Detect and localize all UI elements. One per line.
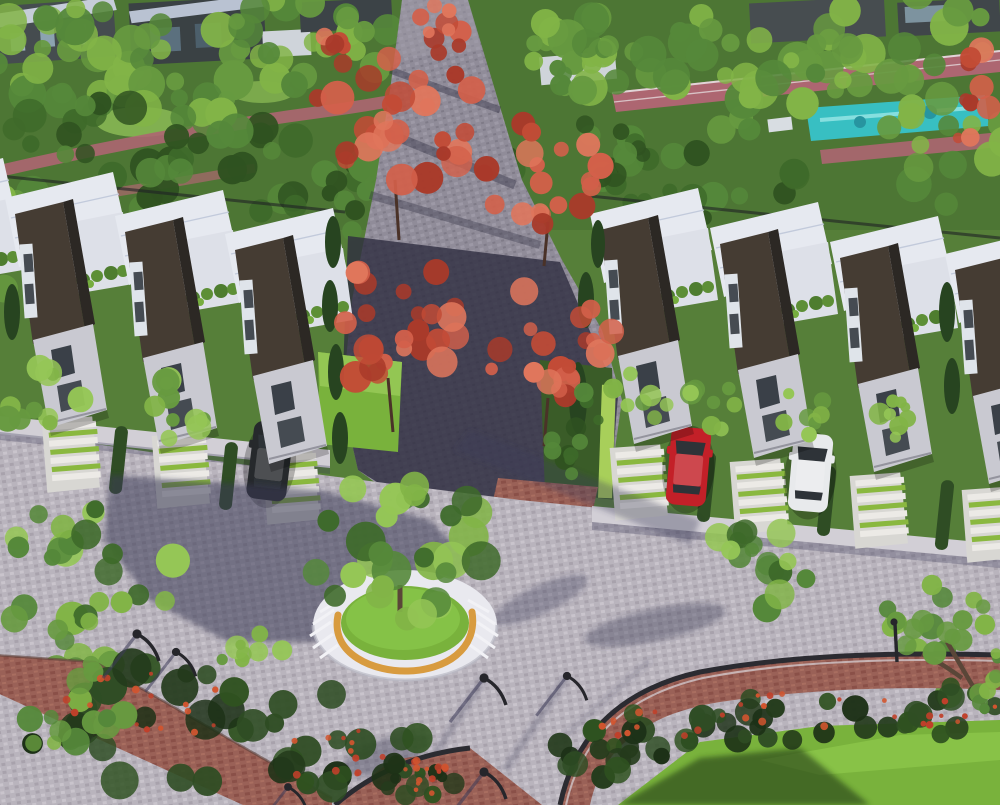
aerial-community-render [0,0,1000,805]
